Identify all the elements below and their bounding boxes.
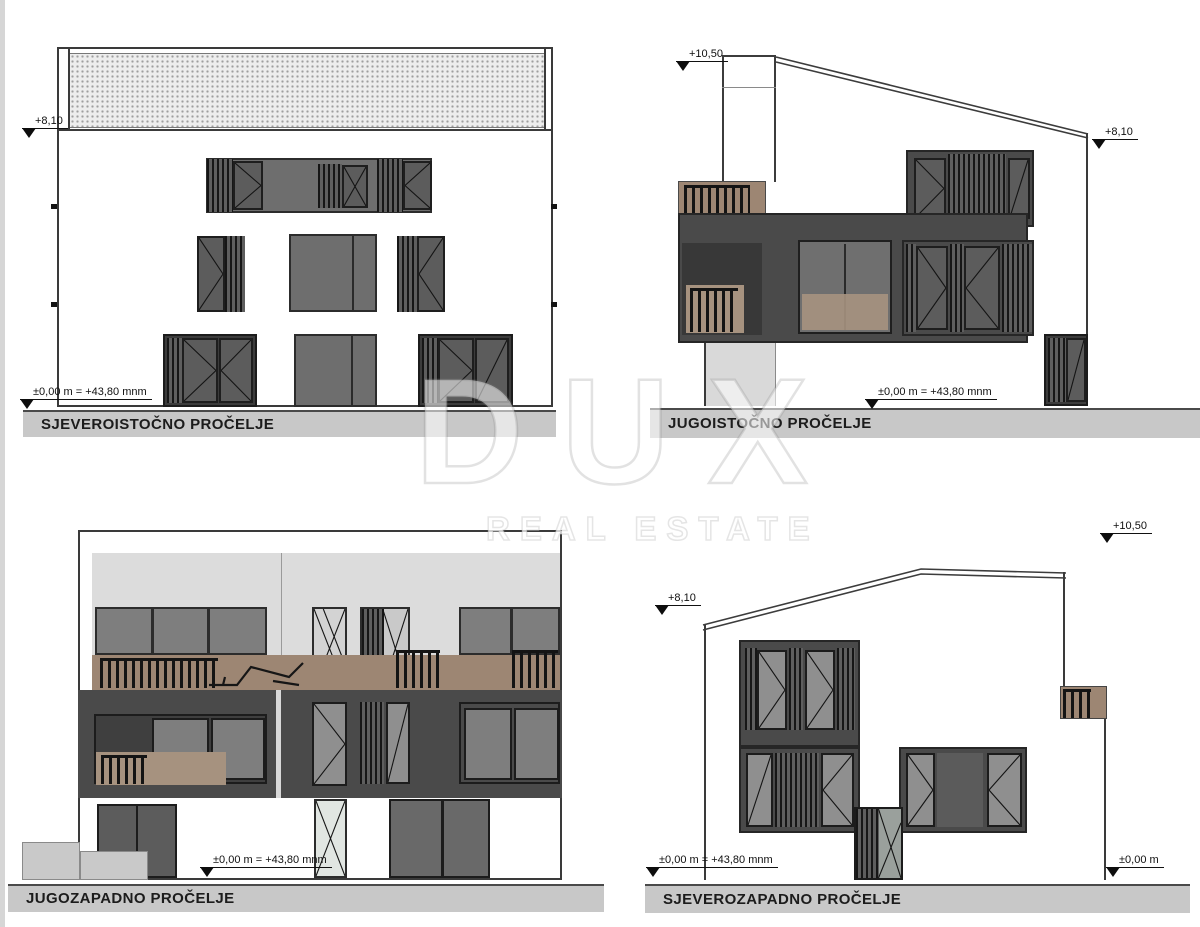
balcony-furniture [690,288,738,332]
window-group [459,607,560,655]
roof-parapet-hatch [69,53,545,128]
door-divider [352,236,354,310]
level-marker-icon [1100,533,1114,550]
level-marker-icon [646,867,660,884]
wall-tick [51,302,57,307]
level-marker-icon [22,128,36,145]
window-group [798,240,892,334]
door-divider [351,336,353,405]
level-marker-icon [1106,867,1120,884]
louvre-shutter [377,159,403,212]
level-marker-icon [1092,139,1106,156]
window-group [739,747,860,833]
level-marker: +8,10 [655,592,701,622]
louvre-shutter [360,702,384,784]
wall-tick [51,204,57,209]
balcony-furniture [100,658,218,688]
parapet-bottom-line [57,129,553,131]
level-marker-icon [865,399,879,416]
level-marker-label: +10,50 [1100,520,1152,534]
window-group [739,640,860,747]
louvre-shutter [318,164,342,208]
louvre-shutter [225,236,245,312]
window-group [163,334,257,407]
entrance-door [854,807,903,880]
entrance-door [294,334,377,407]
right-wall-line [1063,572,1065,688]
window-group [459,702,560,784]
facade-title-bar: SJEVEROZAPADNO PROČELJE [645,884,1190,913]
level-marker: +8,10 [22,115,68,145]
level-marker-icon [676,61,690,78]
level-marker-label: ±0,00 m = +43,80 mnm [20,386,152,400]
retaining-wall-step [22,842,80,880]
level-marker-icon [20,399,34,416]
level-marker: ±0,00 m = +43,80 mnm [865,386,997,416]
level-marker: ±0,00 m [1106,854,1164,884]
level-marker-label: +10,50 [676,48,728,62]
level-marker: ±0,00 m = +43,80 mnm [20,386,152,416]
louvre-shutter [397,236,417,312]
window-group [902,240,1034,336]
window-pane [233,161,263,210]
balcony-furniture [101,755,147,784]
level-marker-label: +8,10 [1092,126,1138,140]
window-group [418,334,513,407]
window-pane [417,236,445,312]
page-edge-strip [0,0,5,927]
level-marker-label: +8,10 [22,115,68,129]
level-marker-label: ±0,00 m [1106,854,1164,868]
facade-title: JUGOZAPADNO PROČELJE [26,890,235,907]
balcony-furniture [396,650,440,688]
level-marker-icon [655,605,669,622]
balcony-furniture [1063,689,1091,718]
facade-title: SJEVEROZAPADNO PROČELJE [663,891,901,908]
tall-window [312,702,347,786]
level-marker: +10,50 [676,48,728,78]
level-marker-label: ±0,00 m = +43,80 mnm [865,386,997,400]
facade-title: JUGOISTOČNO PROČELJE [668,415,872,432]
level-marker: +10,50 [1100,520,1152,550]
level-marker: +8,10 [1092,126,1138,156]
balcony-door [289,234,377,312]
facade-title-bar: JUGOZAPADNO PROČELJE [8,884,604,912]
window-group [95,607,267,655]
ground-floor-pier [704,343,776,406]
wall-tick [551,302,557,307]
elevation-drawing-sheet: +8,10 ±0,00 m = +43,80 mnm SJEVEROISTOČN… [0,0,1200,927]
window-pane [342,165,368,208]
facade-title: SJEVEROISTOČNO PROČELJE [41,416,274,433]
left-wall-line [704,624,706,880]
lounge-chair [203,655,308,689]
wall-tick [551,204,557,209]
level-marker-label: ±0,00 m = +43,80 mnm [200,854,332,868]
retaining-wall-step [80,851,148,880]
balcony-furniture [684,185,750,213]
level-marker: ±0,00 m = +43,80 mnm [646,854,778,884]
balcony-furniture [512,650,558,688]
window-pane [403,161,432,210]
louvre-shutter [207,159,233,212]
window-group [899,747,1027,833]
parapet-post-line [68,47,70,131]
parapet-post-line [544,47,546,131]
level-marker-label: +8,10 [655,592,701,606]
window-pane [197,236,225,312]
level-marker-icon [200,867,214,884]
level-marker: ±0,00 m = +43,80 mnm [200,854,332,884]
window-group [1044,334,1088,406]
window-group [389,799,490,878]
unit-seam-line [276,690,281,798]
window-pane [386,702,410,784]
level-marker-label: ±0,00 m = +43,80 mnm [646,854,778,868]
